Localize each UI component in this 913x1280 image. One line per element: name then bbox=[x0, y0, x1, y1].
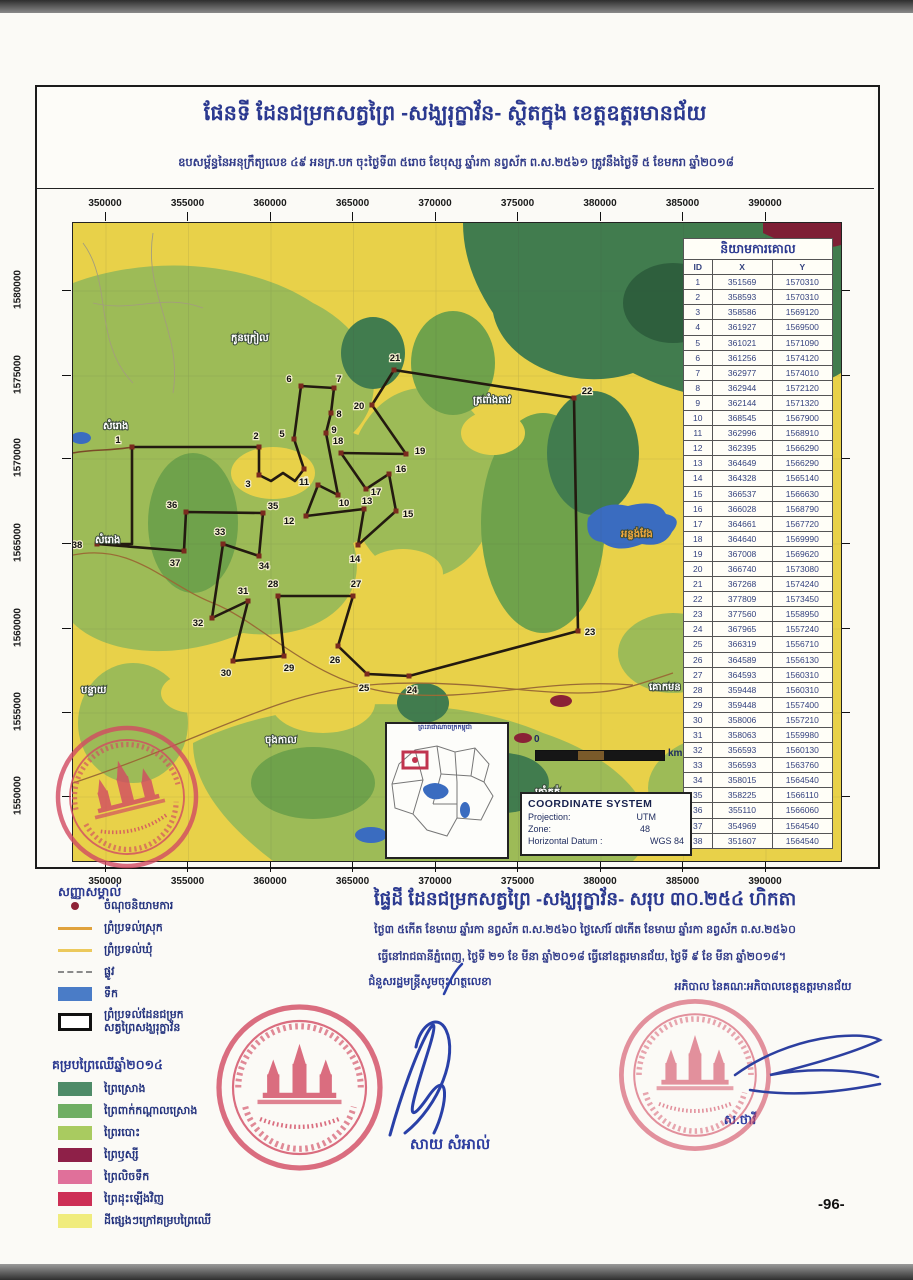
y-tick-left bbox=[62, 712, 71, 713]
coordinate-system-title: COORDINATE SYSTEM bbox=[528, 798, 684, 810]
legend-label: ព្រៃពាក់កណ្តាលស្រោង bbox=[104, 1105, 197, 1118]
boundary-vertex-number: 23 bbox=[585, 627, 596, 638]
coordinate-cell: 1574010 bbox=[772, 365, 832, 380]
boundary-vertex-number: 28 bbox=[268, 579, 279, 590]
boundary-vertex-number: 20 bbox=[354, 401, 365, 412]
x-axis-label-top: 385000 bbox=[648, 198, 718, 209]
coordinate-row: 303580061557210 bbox=[684, 712, 833, 727]
coordinate-cell: 366028 bbox=[712, 501, 772, 516]
coordinate-system-box: COORDINATE SYSTEM Projection:UTM Zone:48… bbox=[520, 792, 692, 856]
coordinate-cell: 1560310 bbox=[772, 682, 832, 697]
x-axis-label-bottom: 380000 bbox=[565, 876, 635, 887]
boundary-vertex-number: 17 bbox=[371, 487, 382, 498]
coordinate-cell: 1564540 bbox=[772, 773, 832, 788]
scan-edge-bottom bbox=[0, 1264, 913, 1280]
coordinate-row: 63612561574120 bbox=[684, 350, 833, 365]
legend-label: ចំណុចនិយាមការ bbox=[104, 900, 173, 913]
forest-legend-item: ដីផ្សេងៗក្រៅគម្របព្រៃឈើ bbox=[58, 1210, 298, 1232]
coordinate-cell: 356593 bbox=[712, 758, 772, 773]
coordinate-row: 223778091573450 bbox=[684, 592, 833, 607]
coordinate-cell: 1556130 bbox=[772, 652, 832, 667]
coordinate-cell: 351607 bbox=[712, 833, 772, 848]
boundary-vertex-number: 10 bbox=[339, 498, 350, 509]
legend-item: ចំណុចនិយាមការ bbox=[58, 895, 288, 917]
boundary-vertex bbox=[324, 431, 329, 436]
coordinate-cell: 33 bbox=[684, 758, 713, 773]
coordinate-cell: 1563760 bbox=[772, 758, 832, 773]
coordinate-cell: 9 bbox=[684, 395, 713, 410]
coordinate-column-header: Y bbox=[772, 260, 832, 275]
boundary-vertex bbox=[370, 403, 375, 408]
coordinate-cell: 377809 bbox=[712, 592, 772, 607]
coordinate-table-title: និយាមការគោល bbox=[684, 239, 833, 260]
coordinate-cell: 1567720 bbox=[772, 516, 832, 531]
x-tick-top bbox=[105, 212, 106, 221]
coordinate-row: 253663191556710 bbox=[684, 637, 833, 652]
scanned-map-document: ផែនទី ដែនជម្រកសត្វព្រៃ -សង្ឃរុក្ខាវ័ន- ស… bbox=[0, 0, 913, 1280]
coordinate-row: 23585931570310 bbox=[684, 290, 833, 305]
boundary-vertex bbox=[130, 445, 135, 450]
coordinate-row: 193670081569620 bbox=[684, 546, 833, 561]
y-tick-left bbox=[62, 375, 71, 376]
boundary-vertex bbox=[356, 543, 361, 548]
coordinate-cell: 356593 bbox=[712, 743, 772, 758]
coordinate-cell: 1569990 bbox=[772, 531, 832, 546]
coordinate-cell: 377560 bbox=[712, 607, 772, 622]
boundary-vertex bbox=[576, 629, 581, 634]
zone-label: Zone: bbox=[528, 824, 551, 834]
line-symbol bbox=[58, 927, 92, 930]
coordinate-cell: 367965 bbox=[712, 622, 772, 637]
boundary-vertex-number: 33 bbox=[215, 527, 226, 538]
coordinate-cell: 364328 bbox=[712, 471, 772, 486]
coordinate-cell: 31 bbox=[684, 728, 713, 743]
coordinate-cell: 367008 bbox=[712, 546, 772, 561]
coordinate-cell: 13 bbox=[684, 456, 713, 471]
coordinate-row: 263645891556130 bbox=[684, 652, 833, 667]
boundary-vertex bbox=[282, 654, 287, 659]
coordinate-column-header: ID bbox=[684, 260, 713, 275]
coordinate-cell: 21 bbox=[684, 577, 713, 592]
x-tick-top bbox=[352, 212, 353, 221]
swatch-symbol bbox=[58, 1170, 92, 1184]
boundary-vertex bbox=[276, 594, 281, 599]
boundary-vertex-number: 9 bbox=[331, 425, 336, 436]
x-axis-label-bottom: 360000 bbox=[235, 876, 305, 887]
right-signatory-role: អភិបាល នៃគណៈអភិបាលខេត្តឧត្តរមានជ័យ bbox=[638, 980, 888, 996]
coordinate-cell: 26 bbox=[684, 652, 713, 667]
coordinate-cell: 1574240 bbox=[772, 577, 832, 592]
coordinate-row: 73629771574010 bbox=[684, 365, 833, 380]
coordinate-row: 93621441571320 bbox=[684, 395, 833, 410]
x-axis-label-top: 370000 bbox=[400, 198, 470, 209]
boundary-vertex bbox=[404, 452, 409, 457]
y-tick-right bbox=[841, 628, 850, 629]
boundary-vertex-number: 14 bbox=[350, 554, 361, 565]
x-tick-top bbox=[765, 212, 766, 221]
coordinate-table: និយាមការគោល IDXY 13515691570310235859315… bbox=[683, 238, 833, 849]
boundary-vertex-number: 32 bbox=[193, 618, 204, 629]
x-axis-label-top: 375000 bbox=[483, 198, 553, 209]
coordinate-cell: 1 bbox=[684, 275, 713, 290]
coordinate-row: 133646491566290 bbox=[684, 456, 833, 471]
boundary-vertex-number: 1 bbox=[115, 435, 121, 446]
coordinate-cell: 359448 bbox=[712, 697, 772, 712]
coordinate-column-header: X bbox=[712, 260, 772, 275]
legend-label: ព្រំប្រទល់ឃុំ bbox=[104, 944, 152, 957]
coordinate-cell: 1557240 bbox=[772, 622, 832, 637]
coordinate-cell: 351569 bbox=[712, 275, 772, 290]
boundary-vertex bbox=[304, 514, 309, 519]
boundary-vertex bbox=[407, 674, 412, 679]
coordinate-row: 173646611567720 bbox=[684, 516, 833, 531]
coordinate-row: 353582251566110 bbox=[684, 788, 833, 803]
boundary-vertex-number: 6 bbox=[286, 374, 291, 385]
legend-label: ព្រៃរបោះ bbox=[104, 1127, 140, 1140]
boundary-vertex bbox=[351, 594, 356, 599]
x-axis-label-top: 390000 bbox=[730, 198, 800, 209]
y-tick-left bbox=[62, 628, 71, 629]
coordinate-cell: 362144 bbox=[712, 395, 772, 410]
coordinate-table-header: IDXY bbox=[684, 260, 833, 275]
date-line-1: ថ្ងៃ៣ ៥កើត ខែមាឃ ឆ្នាំរកា នព្វស័ក ព.ស.២៥… bbox=[290, 923, 880, 939]
coordinate-cell: 366537 bbox=[712, 486, 772, 501]
boundary-vertex-number: 30 bbox=[221, 668, 232, 679]
coordinate-row: 383516071564540 bbox=[684, 833, 833, 848]
place-label: សំរោង bbox=[95, 533, 120, 546]
place-label: គោកមន bbox=[649, 682, 681, 693]
coordinate-cell: 366319 bbox=[712, 637, 772, 652]
right-signature bbox=[730, 1020, 890, 1110]
rect-symbol bbox=[58, 987, 92, 1001]
coordinate-row: 313580631559980 bbox=[684, 728, 833, 743]
boundary-vertex bbox=[362, 507, 367, 512]
coordinate-cell: 362944 bbox=[712, 380, 772, 395]
swatch-symbol bbox=[58, 1192, 92, 1206]
boundary-vertex-number: 38 bbox=[73, 540, 82, 551]
coordinate-cell: 367268 bbox=[712, 577, 772, 592]
y-tick-right bbox=[841, 375, 850, 376]
boundary-vertex-number: 2 bbox=[253, 431, 258, 442]
boundary-vertex-number: 11 bbox=[299, 477, 310, 488]
coordinate-cell: 25 bbox=[684, 637, 713, 652]
x-tick-top bbox=[270, 212, 271, 221]
coordinate-row: 333565931563760 bbox=[684, 758, 833, 773]
coordinate-cell: 1559980 bbox=[772, 728, 832, 743]
coordinate-cell: 23 bbox=[684, 607, 713, 622]
boundary-vertex bbox=[299, 384, 304, 389]
x-tick-top bbox=[600, 212, 601, 221]
boundary-vertex bbox=[387, 472, 392, 477]
boundary-vertex bbox=[332, 386, 337, 391]
coordinate-cell: 10 bbox=[684, 411, 713, 426]
boundary-vertex-number: 19 bbox=[415, 446, 426, 457]
legend-label: ព្រំប្រទល់ដែនជម្រកសត្វព្រៃសង្ឃរុក្ខាវ័ន bbox=[104, 1009, 184, 1034]
boundary-vertex bbox=[329, 411, 334, 416]
coordinate-cell: 12 bbox=[684, 441, 713, 456]
coordinate-cell: 1566630 bbox=[772, 486, 832, 501]
coordinate-cell: 19 bbox=[684, 546, 713, 561]
scale-bar bbox=[535, 750, 665, 761]
boundary-vertex-number: 34 bbox=[259, 561, 270, 572]
coordinate-cell: 362977 bbox=[712, 365, 772, 380]
scale-zero-label: 0 bbox=[534, 734, 540, 745]
boundary-vertex-number: 22 bbox=[582, 386, 593, 397]
date-line-2: ធ្វើនៅរាជធានីភ្នំពេញ, ថ្ងៃទី ២១ ខែ មីនា … bbox=[282, 950, 882, 966]
boundary-vertex bbox=[572, 396, 577, 401]
coordinate-cell: 361256 bbox=[712, 350, 772, 365]
coordinate-cell: 1569500 bbox=[772, 320, 832, 335]
coordinate-cell: 358015 bbox=[712, 773, 772, 788]
boundary-vertex-number: 26 bbox=[330, 655, 341, 666]
coordinate-cell: 362996 bbox=[712, 426, 772, 441]
place-label: សំរោង bbox=[103, 419, 128, 432]
scale-segment bbox=[536, 751, 578, 760]
boundary-vertex bbox=[231, 659, 236, 664]
coordinate-cell: 1558950 bbox=[772, 607, 832, 622]
coordinate-cell: 1566060 bbox=[772, 803, 832, 818]
coordinate-cell: 1566290 bbox=[772, 456, 832, 471]
x-axis-label-bottom: 385000 bbox=[648, 876, 718, 887]
legend-label: ព្រៃដុះឡើងវិញ bbox=[104, 1193, 164, 1206]
coordinate-cell: 361021 bbox=[712, 335, 772, 350]
cambodia-inset bbox=[387, 724, 503, 853]
x-tick-top bbox=[682, 212, 683, 221]
legend-label: ព្រៃស្រោង bbox=[104, 1083, 145, 1096]
coordinate-cell: 17 bbox=[684, 516, 713, 531]
coordinate-row: 213672681574240 bbox=[684, 577, 833, 592]
boundary-vertex bbox=[184, 510, 189, 515]
coordinate-cell: 364593 bbox=[712, 667, 772, 682]
coordinate-cell: 1567900 bbox=[772, 411, 832, 426]
coordinate-cell: 8 bbox=[684, 380, 713, 395]
coordinate-cell: 16 bbox=[684, 501, 713, 516]
y-tick-left bbox=[62, 458, 71, 459]
boundary-vertex-number: 8 bbox=[336, 409, 341, 420]
coordinate-cell: 366740 bbox=[712, 561, 772, 576]
line-symbol bbox=[58, 949, 92, 952]
coordinate-row: 373549691564540 bbox=[684, 818, 833, 833]
legend-label: ព្រៃលិចទឹក bbox=[104, 1171, 149, 1184]
boundary-vertex-number: 31 bbox=[238, 586, 249, 597]
coordinate-cell: 1566290 bbox=[772, 441, 832, 456]
boundary-vertex-number: 3 bbox=[245, 479, 250, 490]
boundary-vertex bbox=[210, 616, 215, 621]
legend-item: ព្រំប្រទល់ស្រុក bbox=[58, 917, 288, 939]
datum-value: WGS 84 bbox=[650, 836, 684, 846]
coordinate-cell: 1568790 bbox=[772, 501, 832, 516]
coordinate-cell: 29 bbox=[684, 697, 713, 712]
coordinate-cell: 20 bbox=[684, 561, 713, 576]
initial-mark bbox=[440, 962, 470, 996]
page-number: -96- bbox=[818, 1196, 845, 1213]
coordinate-cell: 1570310 bbox=[772, 275, 832, 290]
coordinate-cell: 1570310 bbox=[772, 290, 832, 305]
zone-value: 48 bbox=[640, 824, 650, 834]
coordinate-row: 83629441572120 bbox=[684, 380, 833, 395]
coordinate-cell: 358586 bbox=[712, 305, 772, 320]
coordinate-cell: 1560130 bbox=[772, 743, 832, 758]
coordinate-cell: 1573450 bbox=[772, 592, 832, 607]
swatch-symbol bbox=[58, 1082, 92, 1096]
coordinate-cell: 28 bbox=[684, 682, 713, 697]
coordinate-cell: 358063 bbox=[712, 728, 772, 743]
coordinate-cell: 11 bbox=[684, 426, 713, 441]
scale-unit-label: km bbox=[668, 748, 682, 759]
inset-map bbox=[385, 722, 509, 859]
boundary-vertex-number: 21 bbox=[390, 353, 401, 364]
coordinate-cell: 1560310 bbox=[772, 667, 832, 682]
boundary-vertex bbox=[394, 509, 399, 514]
place-label: ចុងកាល bbox=[265, 735, 297, 747]
boundary-vertex bbox=[257, 445, 262, 450]
boundary-vertex-number: 15 bbox=[403, 509, 414, 520]
place-label: ត្រពាំងតាវ bbox=[473, 393, 512, 406]
boundary-vertex bbox=[339, 451, 344, 456]
boundary-vertex-number: 35 bbox=[268, 501, 279, 512]
legend-label: ព្រំប្រទល់ស្រុក bbox=[104, 922, 163, 935]
legend-label: ដីផ្សេងៗក្រៅគម្របព្រៃឈើ bbox=[104, 1215, 211, 1228]
dot-symbol bbox=[71, 902, 79, 910]
coordinate-cell: 1571320 bbox=[772, 395, 832, 410]
coordinate-cell: 358225 bbox=[712, 788, 772, 803]
coordinate-cell: 364589 bbox=[712, 652, 772, 667]
boundary-vertex bbox=[221, 542, 226, 547]
coordinate-row: 43619271569500 bbox=[684, 320, 833, 335]
page-title: ផែនទី ដែនជម្រកសត្វព្រៃ -សង្ឃរុក្ខាវ័ន- ស… bbox=[60, 100, 850, 131]
coordinate-row: 113629961568910 bbox=[684, 426, 833, 441]
x-tick-top bbox=[517, 212, 518, 221]
boundary-vertex-number: 24 bbox=[407, 685, 418, 696]
boundary-vertex bbox=[392, 368, 397, 373]
boundary-vertex bbox=[292, 437, 297, 442]
y-axis-label-left: 1555000 bbox=[13, 677, 24, 747]
inset-map-title: ព្រះរាជាណាចក្រកម្ពុជា bbox=[388, 724, 502, 733]
coordinate-cell: 1571090 bbox=[772, 335, 832, 350]
coordinate-row: 293594481557400 bbox=[684, 697, 833, 712]
coordinate-cell: 14 bbox=[684, 471, 713, 486]
swatch-symbol bbox=[58, 1126, 92, 1140]
coordinate-cell: 1572120 bbox=[772, 380, 832, 395]
coordinate-cell: 354969 bbox=[712, 818, 772, 833]
legend-label: ព្រៃឫស្សី bbox=[104, 1149, 138, 1162]
boundary-vertex-number: 36 bbox=[167, 500, 178, 511]
page-subtitle: ឧបសម្ព័ន្ធនៃអនុក្រឹត្យលេខ ៤៩ អនក្រ.បក ចុ… bbox=[48, 155, 864, 172]
coordinate-cell: 27 bbox=[684, 667, 713, 682]
coordinate-cell: 5 bbox=[684, 335, 713, 350]
coordinate-cell: 32 bbox=[684, 743, 713, 758]
coordinate-cell: 1573080 bbox=[772, 561, 832, 576]
coordinate-row: 203667401573080 bbox=[684, 561, 833, 576]
coordinate-cell: 1569120 bbox=[772, 305, 832, 320]
boundary-vertex-number: 7 bbox=[336, 374, 341, 385]
x-axis-label-top: 350000 bbox=[70, 198, 140, 209]
coordinate-row: 143643281565140 bbox=[684, 471, 833, 486]
y-axis-label-left: 1575000 bbox=[13, 340, 24, 410]
coordinate-row: 103685451567900 bbox=[684, 411, 833, 426]
boundary-vertex-number: 27 bbox=[351, 579, 362, 590]
coordinate-cell: 362395 bbox=[712, 441, 772, 456]
coordinate-cell: 6 bbox=[684, 350, 713, 365]
coordinate-cell: 1564540 bbox=[772, 833, 832, 848]
coordinate-row: 123623951566290 bbox=[684, 441, 833, 456]
coordinate-row: 343580151564540 bbox=[684, 773, 833, 788]
area-total-title: ផ្ទៃដី ដែនជម្រកសត្វព្រៃ -សង្ឃរុក្ខាវ័ន- … bbox=[290, 888, 880, 915]
forest-legend-title: គម្របព្រៃឈើឆ្នាំ២០១៤ bbox=[52, 1058, 163, 1076]
y-tick-right bbox=[841, 796, 850, 797]
coordinate-cell: 364649 bbox=[712, 456, 772, 471]
boundary-vertex bbox=[246, 599, 251, 604]
forest-legend-item: ព្រៃដុះឡើងវិញ bbox=[58, 1188, 298, 1210]
boundary-vertex-number: 5 bbox=[279, 429, 285, 440]
boundary-vertex bbox=[261, 511, 266, 516]
coordinate-cell: 1557400 bbox=[772, 697, 832, 712]
coordinate-row: 363551101566060 bbox=[684, 803, 833, 818]
y-tick-right bbox=[841, 458, 850, 459]
scale-segment bbox=[604, 751, 664, 760]
boundary-vertex bbox=[336, 493, 341, 498]
y-axis-label-left: 1580000 bbox=[13, 255, 24, 325]
boundary-vertex-number: 29 bbox=[284, 663, 295, 674]
coordinate-cell: 7 bbox=[684, 365, 713, 380]
left-signature bbox=[350, 985, 490, 1145]
coordinate-row: 53610211571090 bbox=[684, 335, 833, 350]
y-tick-right bbox=[841, 712, 850, 713]
boundary-vertex-number: 12 bbox=[284, 516, 295, 527]
x-axis-label-bottom: 365000 bbox=[318, 876, 388, 887]
y-tick-right bbox=[841, 543, 850, 544]
coordinate-cell: 1568910 bbox=[772, 426, 832, 441]
y-tick-left bbox=[62, 543, 71, 544]
coordinate-row: 323565931560130 bbox=[684, 743, 833, 758]
tonle-sap-lake bbox=[423, 783, 449, 799]
datum-label: Horizontal Datum : bbox=[528, 836, 603, 846]
coordinate-row: 33585861569120 bbox=[684, 305, 833, 320]
coordinate-cell: 1556710 bbox=[772, 637, 832, 652]
coordinate-cell: 30 bbox=[684, 712, 713, 727]
x-axis-label-bottom: 375000 bbox=[483, 876, 553, 887]
y-tick-left bbox=[62, 290, 71, 291]
boundary-vertex bbox=[365, 672, 370, 677]
coordinate-cell: 22 bbox=[684, 592, 713, 607]
coordinate-cell: 18 bbox=[684, 531, 713, 546]
dash-symbol bbox=[58, 971, 92, 973]
coordinate-row: 163660281568790 bbox=[684, 501, 833, 516]
coordinate-cell: 3 bbox=[684, 305, 713, 320]
coordinate-cell: 368545 bbox=[712, 411, 772, 426]
coordinate-cell: 1557210 bbox=[772, 712, 832, 727]
swatch-symbol bbox=[58, 1214, 92, 1228]
x-axis-label-top: 365000 bbox=[318, 198, 388, 209]
x-axis-label-top: 360000 bbox=[235, 198, 305, 209]
coordinate-row: 13515691570310 bbox=[684, 275, 833, 290]
coordinate-row: 153665371566630 bbox=[684, 486, 833, 501]
outline-symbol bbox=[58, 1013, 92, 1031]
boundary-vertex-number: 25 bbox=[359, 683, 370, 694]
coordinate-cell: 1574120 bbox=[772, 350, 832, 365]
y-axis-label-left: 1570000 bbox=[13, 423, 24, 493]
coordinate-cell: 358006 bbox=[712, 712, 772, 727]
legend-label: ទឹក bbox=[104, 988, 118, 1001]
coordinate-cell: 2 bbox=[684, 290, 713, 305]
place-label: បន្ទាយ bbox=[81, 685, 107, 696]
coordinate-cell: 15 bbox=[684, 486, 713, 501]
place-label: កូនក្រៀល bbox=[231, 331, 269, 345]
projection-value: UTM bbox=[637, 812, 657, 822]
legend-item: ផ្លូវ bbox=[58, 961, 288, 983]
place-label: អន្លង់វែង bbox=[620, 527, 653, 540]
coordinate-cell: 364640 bbox=[712, 531, 772, 546]
